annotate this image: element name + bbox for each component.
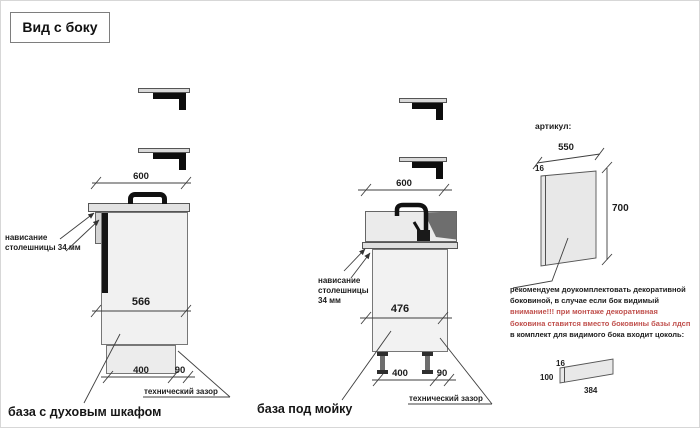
panel-dim-width-label: 550 [558, 142, 574, 153]
note-line-warning: боковина ставится вместо боковины базы л… [510, 318, 690, 329]
sink-dim-height-label: 476 [391, 303, 409, 315]
oven-overhang-note-line2: столешницы 34 мм [5, 243, 81, 253]
oven-overhang-note-line1: нависание [5, 233, 81, 243]
oven-dim-height-label: 566 [132, 296, 150, 308]
oven-cabinet-caption: база с духовым шкафом [8, 405, 161, 419]
decor-side-panel-shape [541, 171, 596, 266]
sink-overhang-note: нависание столешницы 34 мм [318, 276, 369, 306]
oven-cabinet-caption-leader [84, 334, 120, 403]
plinth-dim-height-label: 100 [540, 373, 553, 383]
sink-cabinet-caption-leader [342, 331, 391, 400]
sink-dim-width-label: 600 [396, 178, 412, 189]
drawing-linework [0, 0, 700, 428]
sink-overhang-note-line3: 34 мм [318, 296, 369, 306]
oven-gap-text: технический зазор [144, 387, 218, 397]
panel-dim-thickness-label: 16 [535, 164, 544, 174]
sink-cabinet-overhang-arrows [344, 249, 370, 278]
faucet-icon [397, 205, 430, 241]
sink-gap-text: технический зазор [409, 394, 483, 404]
technical-drawing-canvas: Вид с боку 600 566 400 90 технический за… [0, 0, 700, 428]
oven-overhang-note: нависание столешницы 34 мм [5, 233, 81, 253]
view-title: Вид с боку [22, 19, 97, 35]
sink-dim-plinth-label: 400 [392, 368, 408, 379]
sink-overhang-note-line2: столешницы [318, 286, 369, 296]
oven-dim-width-label: 600 [133, 171, 149, 182]
note-line: рекомендуем доукомплектовать декоративно… [510, 284, 690, 295]
plinth-panel-shape [560, 359, 613, 383]
note-line-warning: внимание!!! при монтаже декоративная [510, 306, 690, 317]
sink-dim-gap-label: 90 [437, 368, 448, 379]
panel-dim-height-label: 700 [612, 204, 629, 214]
note-line: боковиной, в случае если бок видимый [510, 295, 690, 306]
decor-panel-note: рекомендуем доукомплектовать декоративно… [510, 284, 690, 340]
oven-dim-gap-label: 90 [175, 365, 186, 376]
plinth-dim-thickness-label: 16 [556, 359, 565, 369]
decor-side-panel-dim-700 [602, 162, 612, 265]
view-title-box: Вид с боку [10, 12, 110, 43]
oven-dim-plinth-label: 400 [133, 365, 149, 376]
article-label: артикул: [535, 121, 571, 131]
sink-cabinet-caption: база под мойку [257, 402, 352, 416]
plinth-dim-length-label: 384 [584, 386, 597, 396]
sink-overhang-note-line1: нависание [318, 276, 369, 286]
note-line: в комплект для видимого бока входит цоко… [510, 329, 690, 340]
